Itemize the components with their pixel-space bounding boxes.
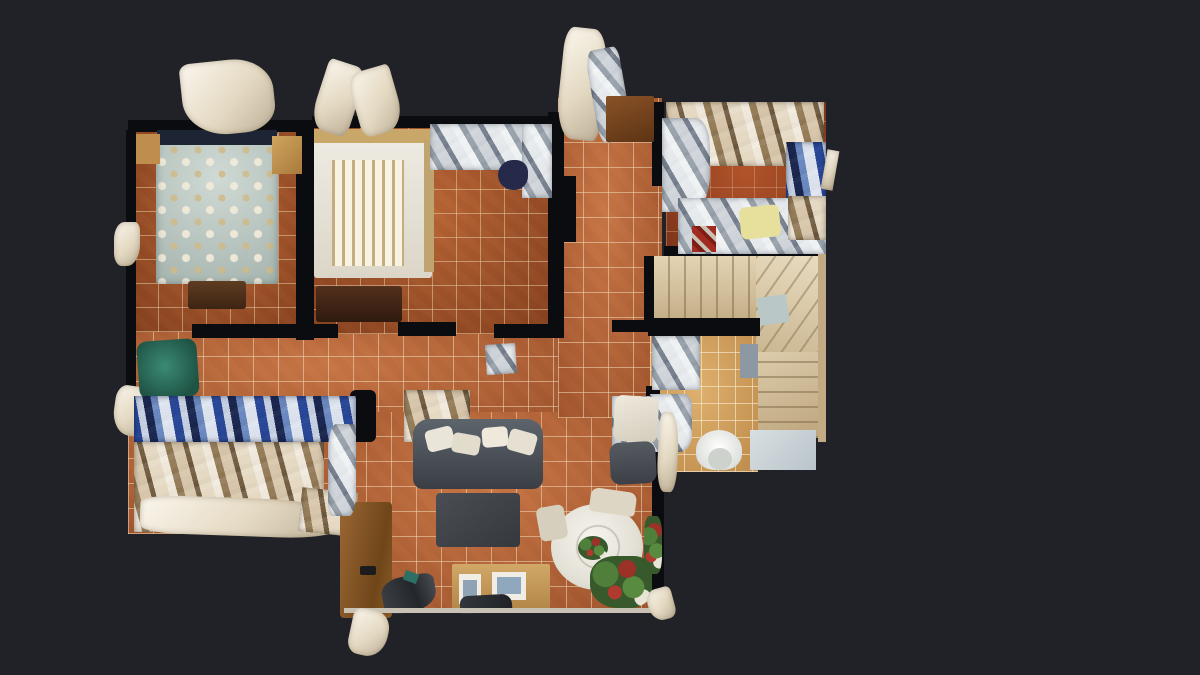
armchair-green [136, 338, 200, 400]
centerpiece-plant [578, 536, 608, 560]
wall-bedroom1-left [126, 130, 136, 424]
coffee-table [436, 493, 520, 547]
clutter-junk-red [692, 226, 716, 252]
desk-handle [360, 566, 376, 575]
wall-stairs-right-edge [818, 254, 826, 442]
plant-arrangement [590, 556, 652, 608]
bed-foot-bench [188, 281, 246, 309]
wardrobe-mirror-right [522, 124, 552, 198]
cabinet-wood [606, 96, 654, 142]
stairs-landing [750, 430, 816, 470]
bed-floral [156, 132, 278, 284]
wall-stairs-left [644, 256, 654, 320]
wall-corridor-stub [558, 176, 576, 242]
chair-white-corner [612, 395, 659, 444]
glitch-living-left [328, 424, 356, 516]
wall-livingroom-bottom-edge [344, 608, 660, 613]
dining-chair-left [535, 504, 568, 542]
nightstand-right [272, 136, 302, 174]
shelf-blue-bins [134, 396, 356, 442]
plant-right-edge [644, 516, 662, 574]
stairs-lower-flight [758, 352, 822, 438]
armchair-dark [609, 441, 657, 485]
clutter-junk-tan-corner [788, 196, 826, 240]
wall-hall-top-c [494, 324, 564, 338]
mat-blue-gray [740, 344, 758, 378]
picture-photo-2 [497, 577, 521, 594]
wall-stairs-hall-divider [648, 318, 760, 336]
cushion-yellow [738, 204, 781, 240]
sofa-cushion-3 [481, 426, 509, 448]
chair-navy [498, 160, 528, 190]
curtain-glitch-right [656, 412, 680, 493]
bed-white-blanket [332, 160, 404, 266]
bathroom-fixture-glitch [652, 336, 700, 390]
stairs-upper-flight [652, 256, 762, 320]
dollhouse-3d-view[interactable] [0, 0, 1200, 675]
dresser-dark [316, 286, 402, 322]
mat-reflective [485, 343, 517, 375]
nightstand-left [136, 134, 160, 164]
wall-hall-top-b [398, 322, 456, 336]
glitch-bottom-right [644, 585, 677, 623]
scan-artifact-left-upper [114, 222, 140, 266]
toilet-seat-opening [708, 448, 732, 470]
stairs-blue-patch [756, 294, 790, 326]
wall-hall-top-a [192, 324, 338, 338]
